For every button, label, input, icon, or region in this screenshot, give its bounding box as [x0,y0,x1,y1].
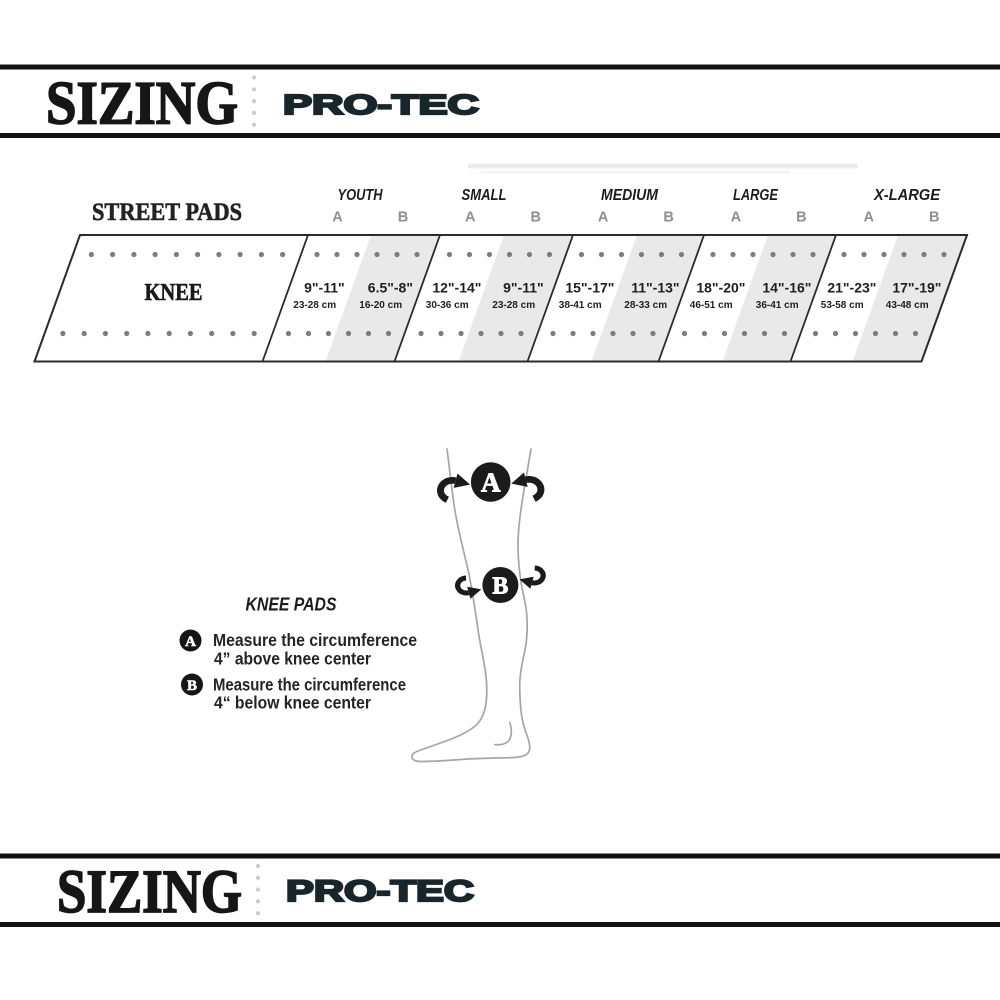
svg-text:30-36 cm: 30-36 cm [426,300,469,311]
svg-text:LARGE: LARGE [733,187,779,204]
svg-text:46-51 cm: 46-51 cm [690,300,733,311]
svg-text:36-41 cm: 36-41 cm [756,300,799,311]
svg-text:18"-20": 18"-20" [696,280,745,296]
svg-text:SMALL: SMALL [462,187,507,204]
svg-text:A: A [332,210,343,226]
svg-text:15"-17": 15"-17" [565,280,614,296]
svg-text:43-48 cm: 43-48 cm [886,300,929,311]
svg-text:B: B [796,210,806,226]
svg-text:X-LARGE: X-LARGE [873,187,941,204]
svg-text:PRO-TEC: PRO-TEC [286,875,474,908]
svg-text:MEDIUM: MEDIUM [601,187,659,204]
svg-text:A: A [731,210,742,226]
svg-text:53-58 cm: 53-58 cm [821,300,864,311]
svg-text:SIZING: SIZING [46,71,238,138]
svg-text:KNEE PADS: KNEE PADS [246,594,338,615]
svg-text:28-33 cm: 28-33 cm [624,300,667,311]
svg-text:6.5"-8": 6.5"-8" [368,280,413,296]
svg-text:A: A [481,468,501,498]
svg-text:4” above knee center: 4” above knee center [214,648,371,668]
svg-text:A: A [598,210,609,226]
svg-text:KNEE: KNEE [145,280,203,306]
svg-text:Measure the circumference: Measure the circumference [213,630,417,650]
svg-text:14"-16": 14"-16" [762,280,811,296]
svg-text:17"-19": 17"-19" [892,280,941,296]
svg-text:9"-11": 9"-11" [304,280,345,296]
svg-text:12"-14": 12"-14" [432,280,481,296]
svg-text:9"-11": 9"-11" [503,280,544,296]
svg-text:B: B [663,210,673,226]
svg-text:B: B [531,210,541,226]
svg-text:21"-23": 21"-23" [827,280,876,296]
svg-text:4“ below knee center: 4“ below knee center [214,692,371,712]
svg-text:B: B [492,574,508,600]
svg-text:A: A [863,210,874,226]
svg-text:YOUTH: YOUTH [338,187,384,204]
svg-text:16-20 cm: 16-20 cm [359,300,402,311]
svg-text:PRO-TEC: PRO-TEC [283,89,479,120]
svg-text:23-28 cm: 23-28 cm [293,300,336,311]
svg-text:A: A [185,634,196,650]
svg-text:SIZING: SIZING [57,859,242,926]
svg-text:23-28 cm: 23-28 cm [492,300,535,311]
svg-text:38-41 cm: 38-41 cm [559,300,602,311]
svg-text:B: B [398,210,408,226]
svg-text:STREET PADS: STREET PADS [92,199,242,226]
svg-text:11"-13": 11"-13" [631,280,679,296]
svg-text:B: B [929,210,939,226]
svg-text:A: A [465,210,476,226]
svg-text:B: B [187,678,197,694]
svg-text:Measure the circumference: Measure the circumference [213,674,406,694]
